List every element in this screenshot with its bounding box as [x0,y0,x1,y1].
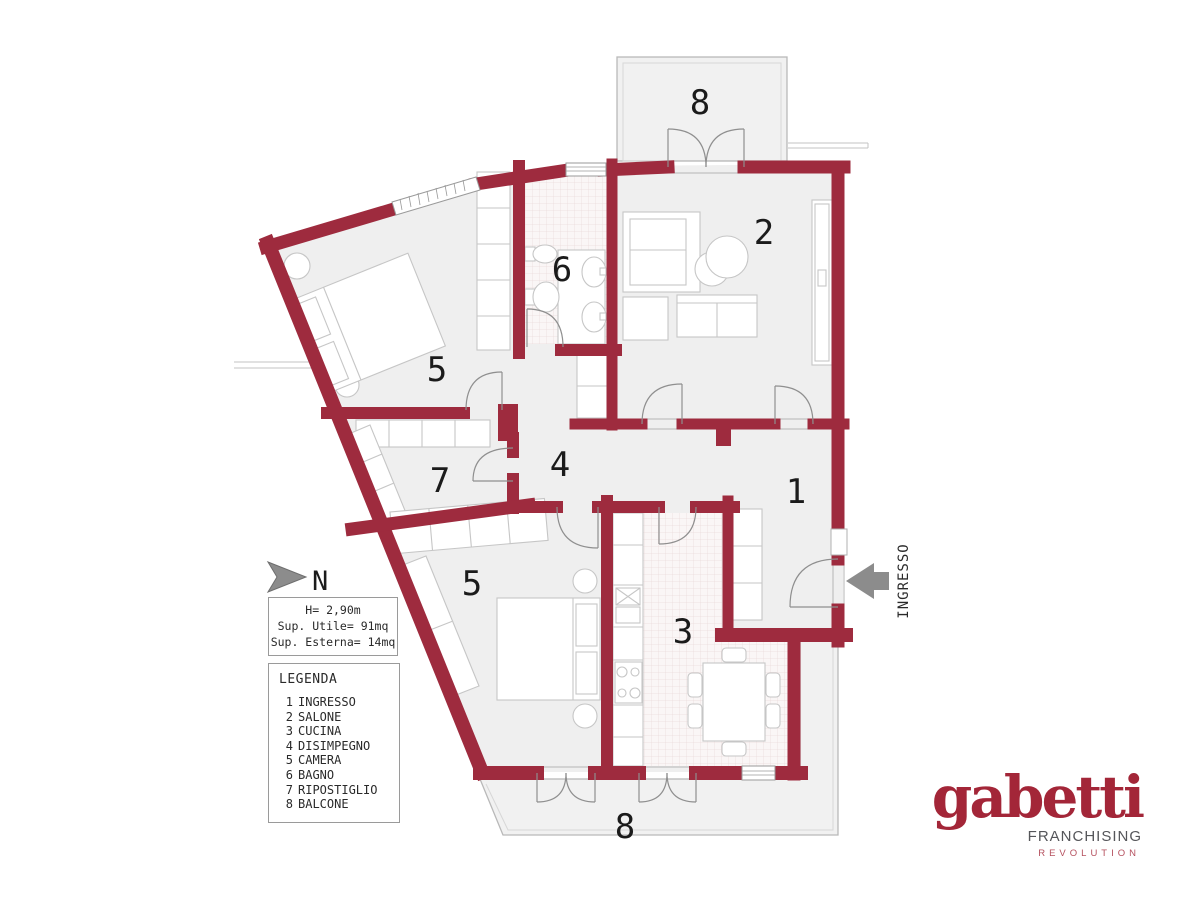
external-area-value: Sup. Esterna= 14mq [269,634,397,650]
room-label-camera-2: 5 [462,564,482,604]
height-value: H= 2,90m [269,602,397,618]
logo-revolution-text: REVOLUTION [1038,848,1140,859]
legend-item: 3CUCINA [279,724,399,739]
floorplan-page: 8 2 6 5 4 7 1 5 3 8 N INGRESSO H= 2,90m … [0,0,1200,900]
closet-ingresso [729,509,762,620]
entrance-label: INGRESSO [896,543,912,618]
logo-franchising-text: FRANCHISING [1028,828,1142,845]
room-label-ripostiglio: 7 [430,461,450,501]
kitchen-stove [615,662,642,703]
room-label-balcone-nord: 8 [690,83,710,123]
window-cucina [742,766,775,780]
legend-item: 6BAGNO [279,768,399,783]
measurements-box: H= 2,90m Sup. Utile= 91mq Sup. Esterna= … [268,597,398,656]
legend-item: 8BALCONE [279,797,399,812]
legend-item: 1INGRESSO [279,695,399,710]
north-arrow-icon [268,562,306,592]
wardrobe-camera-1 [477,172,510,350]
usable-area-value: Sup. Utile= 91mq [269,618,397,634]
room-label-camera-1: 5 [427,350,447,390]
room-label-cucina: 3 [673,612,693,652]
legend-item: 4DISIMPEGNO [279,739,399,754]
kitchen-sink [616,588,640,623]
north-indicator: N [268,562,328,597]
north-label: N [312,566,328,597]
legend-item: 5CAMERA [279,753,399,768]
closet-corridor [577,355,609,418]
room-label-disimpegno: 4 [550,445,570,485]
logo-brand-text: gabetti [932,768,1142,826]
room-label-balcone-sud: 8 [615,807,635,847]
window-bagno [566,163,606,176]
room-label-bagno: 6 [552,250,572,290]
legend-item: 7RIPOSTIGLIO [279,783,399,798]
legend-title: LEGENDA [279,672,399,687]
room-label-ingresso: 1 [786,472,806,512]
gabetti-logo: gabetti FRANCHISING REVOLUTION [930,768,1142,859]
legend: LEGENDA 1INGRESSO 2SALONE 3CUCINA 4DISIM… [268,663,400,823]
room-label-salone: 2 [754,213,774,253]
legend-item: 2SALONE [279,710,399,725]
entrance-arrow-icon [846,563,889,599]
entrance-indicator: INGRESSO [846,543,912,618]
wall-niche [831,529,847,555]
